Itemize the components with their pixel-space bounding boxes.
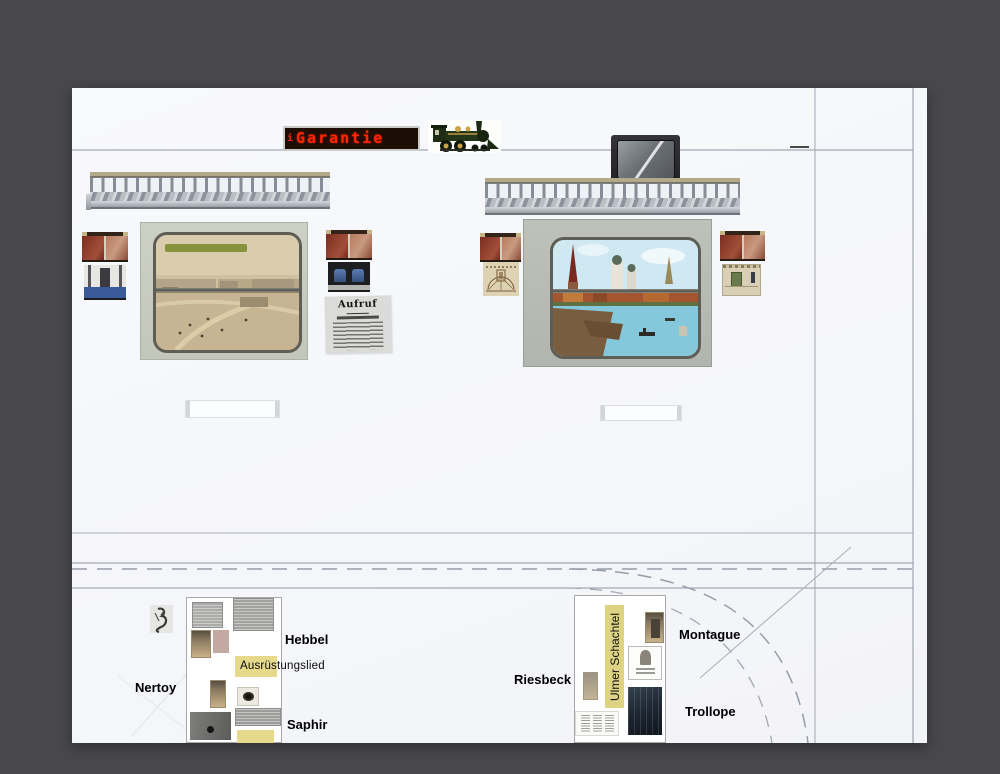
label-trollope: Trollope	[685, 705, 736, 718]
mini-photo-pink	[213, 630, 229, 653]
mini-photo-carriage-door	[84, 265, 126, 300]
luggage-rack-left	[90, 172, 330, 209]
newspaper-bodytext-lines	[333, 321, 384, 350]
mini-photo-portrait	[645, 612, 664, 643]
steam-locomotive-icon	[428, 120, 501, 153]
led-sign-prefix: i	[287, 133, 293, 144]
newspaper-subhead-bar	[337, 316, 379, 320]
led-sign-text: Garantie	[296, 131, 384, 146]
carriage-window-left	[140, 222, 308, 360]
carriage-window-right	[523, 219, 712, 367]
newspaper-headline: Aufruf	[324, 295, 390, 311]
mini-photo-texture	[233, 598, 274, 631]
window-divider-bar	[156, 288, 299, 292]
drawing-canvas: i Garantie	[72, 88, 927, 743]
luggage-rack-right	[485, 178, 740, 215]
mini-photo-night-scene	[628, 687, 662, 735]
mini-photo-sepia	[583, 672, 598, 700]
mini-photo-dark-plate	[190, 712, 231, 740]
postcard-caption-banner	[165, 244, 247, 252]
mini-photo-texture	[235, 708, 281, 726]
label-montague: Montague	[679, 628, 740, 641]
mini-card-portrait	[628, 646, 662, 680]
mini-photo-red-rack	[326, 230, 372, 260]
mini-photo-texture	[192, 602, 223, 628]
window-postcard-city	[550, 237, 701, 359]
folding-table-outline-left	[185, 400, 280, 418]
label-ulmer-schachtel: Ulmer Schachtel	[605, 605, 624, 708]
folding-table-outline-right	[600, 405, 682, 421]
tv-screen	[617, 140, 675, 179]
window-postcard-sepia	[153, 232, 302, 353]
label-ausruestungslied: Ausrüstungslied	[240, 659, 325, 674]
mini-photo-compartment-seats	[328, 262, 370, 292]
mini-engraving-arch	[483, 262, 519, 296]
mini-photo-moth	[237, 687, 259, 706]
mini-photo-red-rack	[720, 231, 765, 261]
label-nertoy: Nertoy	[135, 681, 176, 694]
highlight-yellow-patch	[237, 730, 274, 743]
mini-photo-red-rack	[82, 232, 128, 262]
label-saphir: Saphir	[287, 718, 327, 731]
mini-photo-sepia	[191, 630, 211, 658]
newspaper-clipping: Aufruf	[324, 295, 391, 353]
mini-photo-sepia	[210, 680, 226, 708]
led-destination-sign: i Garantie	[283, 126, 420, 151]
label-hebbel: Hebbel	[285, 633, 328, 646]
label-riesbeck: Riesbeck	[514, 673, 571, 686]
label-ulmer-schachtel-text: Ulmer Schachtel	[608, 612, 622, 700]
mini-photo-compartment-wall	[722, 264, 761, 296]
mini-document-page	[575, 711, 619, 736]
window-divider-bar	[553, 289, 698, 293]
mini-photo-red-rack	[480, 233, 521, 262]
mini-photo-figure	[150, 605, 173, 633]
